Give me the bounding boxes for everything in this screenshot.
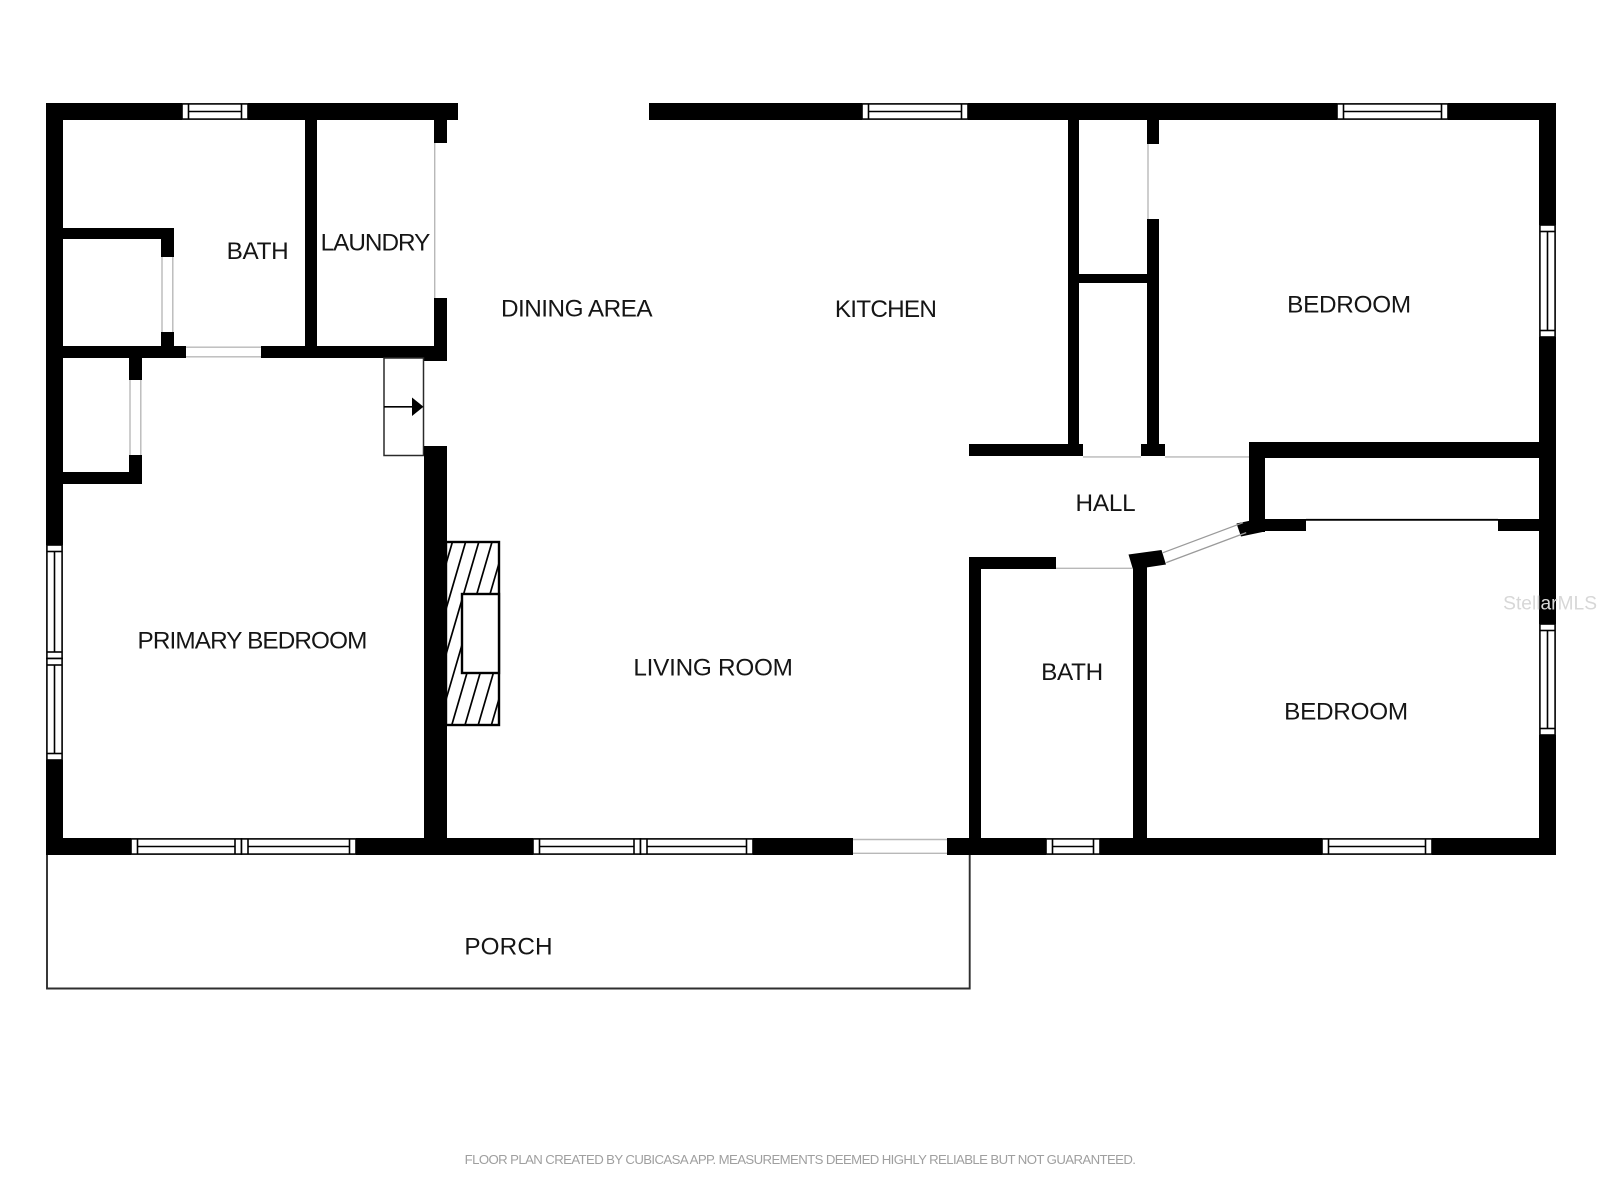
svg-text:HALL: HALL [1076,490,1136,517]
svg-text:BATH: BATH [227,238,289,265]
svg-text:BEDROOM: BEDROOM [1287,292,1411,319]
svg-text:StellarMLS: StellarMLS [1503,594,1597,615]
svg-text:KITCHEN: KITCHEN [835,296,936,323]
svg-text:PORCH: PORCH [464,934,552,961]
svg-text:LAUNDRY: LAUNDRY [321,230,430,257]
svg-text:DINING AREA: DINING AREA [501,296,653,323]
svg-text:BEDROOM: BEDROOM [1284,699,1408,726]
svg-text:FLOOR PLAN CREATED BY CUBICASA: FLOOR PLAN CREATED BY CUBICASA APP. MEAS… [465,1152,1136,1167]
svg-text:BATH: BATH [1041,659,1103,686]
svg-text:PRIMARY BEDROOM: PRIMARY BEDROOM [138,628,367,655]
svg-text:LIVING ROOM: LIVING ROOM [633,655,792,682]
